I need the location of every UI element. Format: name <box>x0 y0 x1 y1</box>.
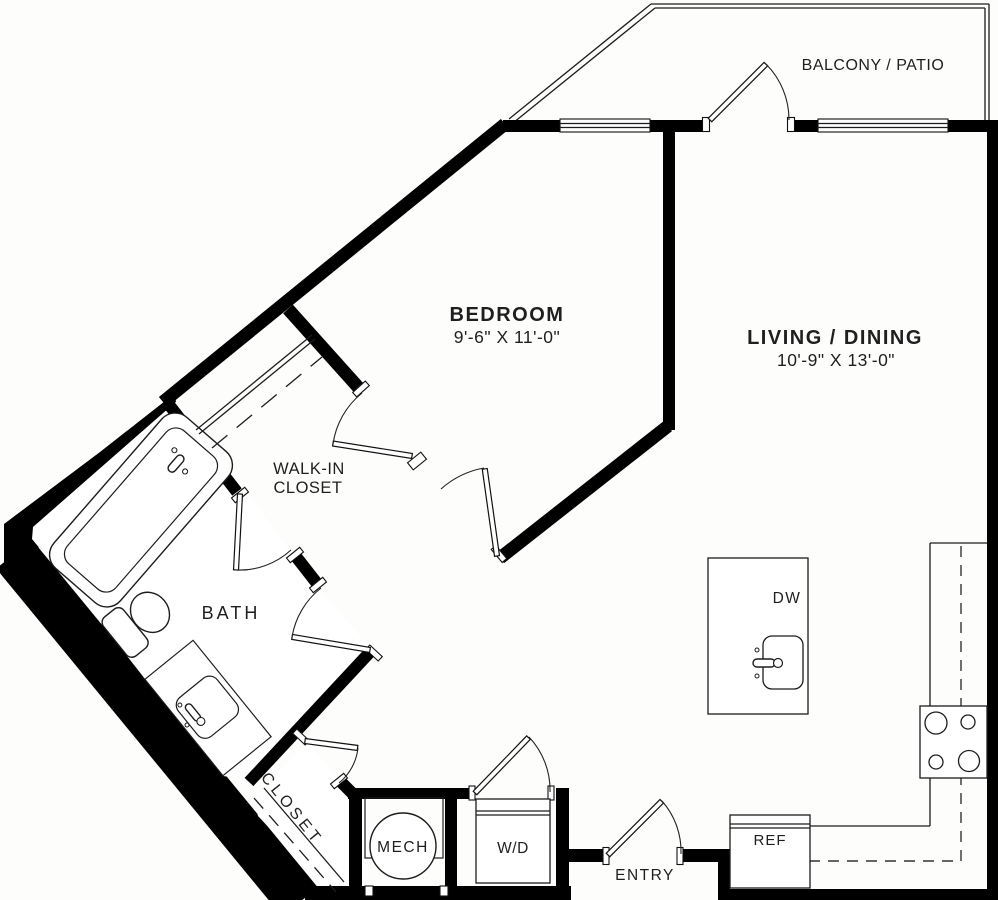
floor-plan-canvas: BALCONY / PATIO BEDROOM 9'-6" X 11'-0" L… <box>0 0 998 900</box>
walk-in-closet-label-line1: WALK-IN <box>273 460 345 478</box>
bedroom-dims: 9'-6" X 11'-0" <box>454 327 561 347</box>
entry-label: ENTRY <box>615 867 675 884</box>
window-living <box>818 119 948 132</box>
wall-vent <box>365 886 373 896</box>
walk-in-closet-door <box>333 393 413 458</box>
walls-orthogonal <box>305 120 998 900</box>
bedroom-label: BEDROOM <box>450 304 565 326</box>
laundry-door <box>473 736 550 795</box>
entry-door <box>606 799 681 856</box>
living-dining-label: LIVING / DINING <box>747 327 923 349</box>
wall-vent <box>440 886 448 896</box>
walk-in-closet-label-line2: CLOSET <box>273 479 342 497</box>
bedroom-door <box>441 468 499 556</box>
balcony-door <box>708 62 789 121</box>
laundry-label: W/D <box>497 840 529 857</box>
dishwasher-label: DW <box>773 590 802 607</box>
kitchen-island <box>708 558 808 714</box>
range-cooktop <box>920 706 987 778</box>
refrigerator-label: REF <box>754 832 787 849</box>
balcony-label: BALCONY / PATIO <box>802 57 945 74</box>
refrigerator <box>730 815 810 888</box>
living-dining-dims: 10'-9" X 13'-0" <box>777 350 895 370</box>
window-bedroom <box>560 119 650 132</box>
bath-label: BATH <box>202 603 261 623</box>
mech-label: MECH <box>377 839 429 856</box>
floor-plan: BALCONY / PATIO BEDROOM 9'-6" X 11'-0" L… <box>0 0 998 900</box>
